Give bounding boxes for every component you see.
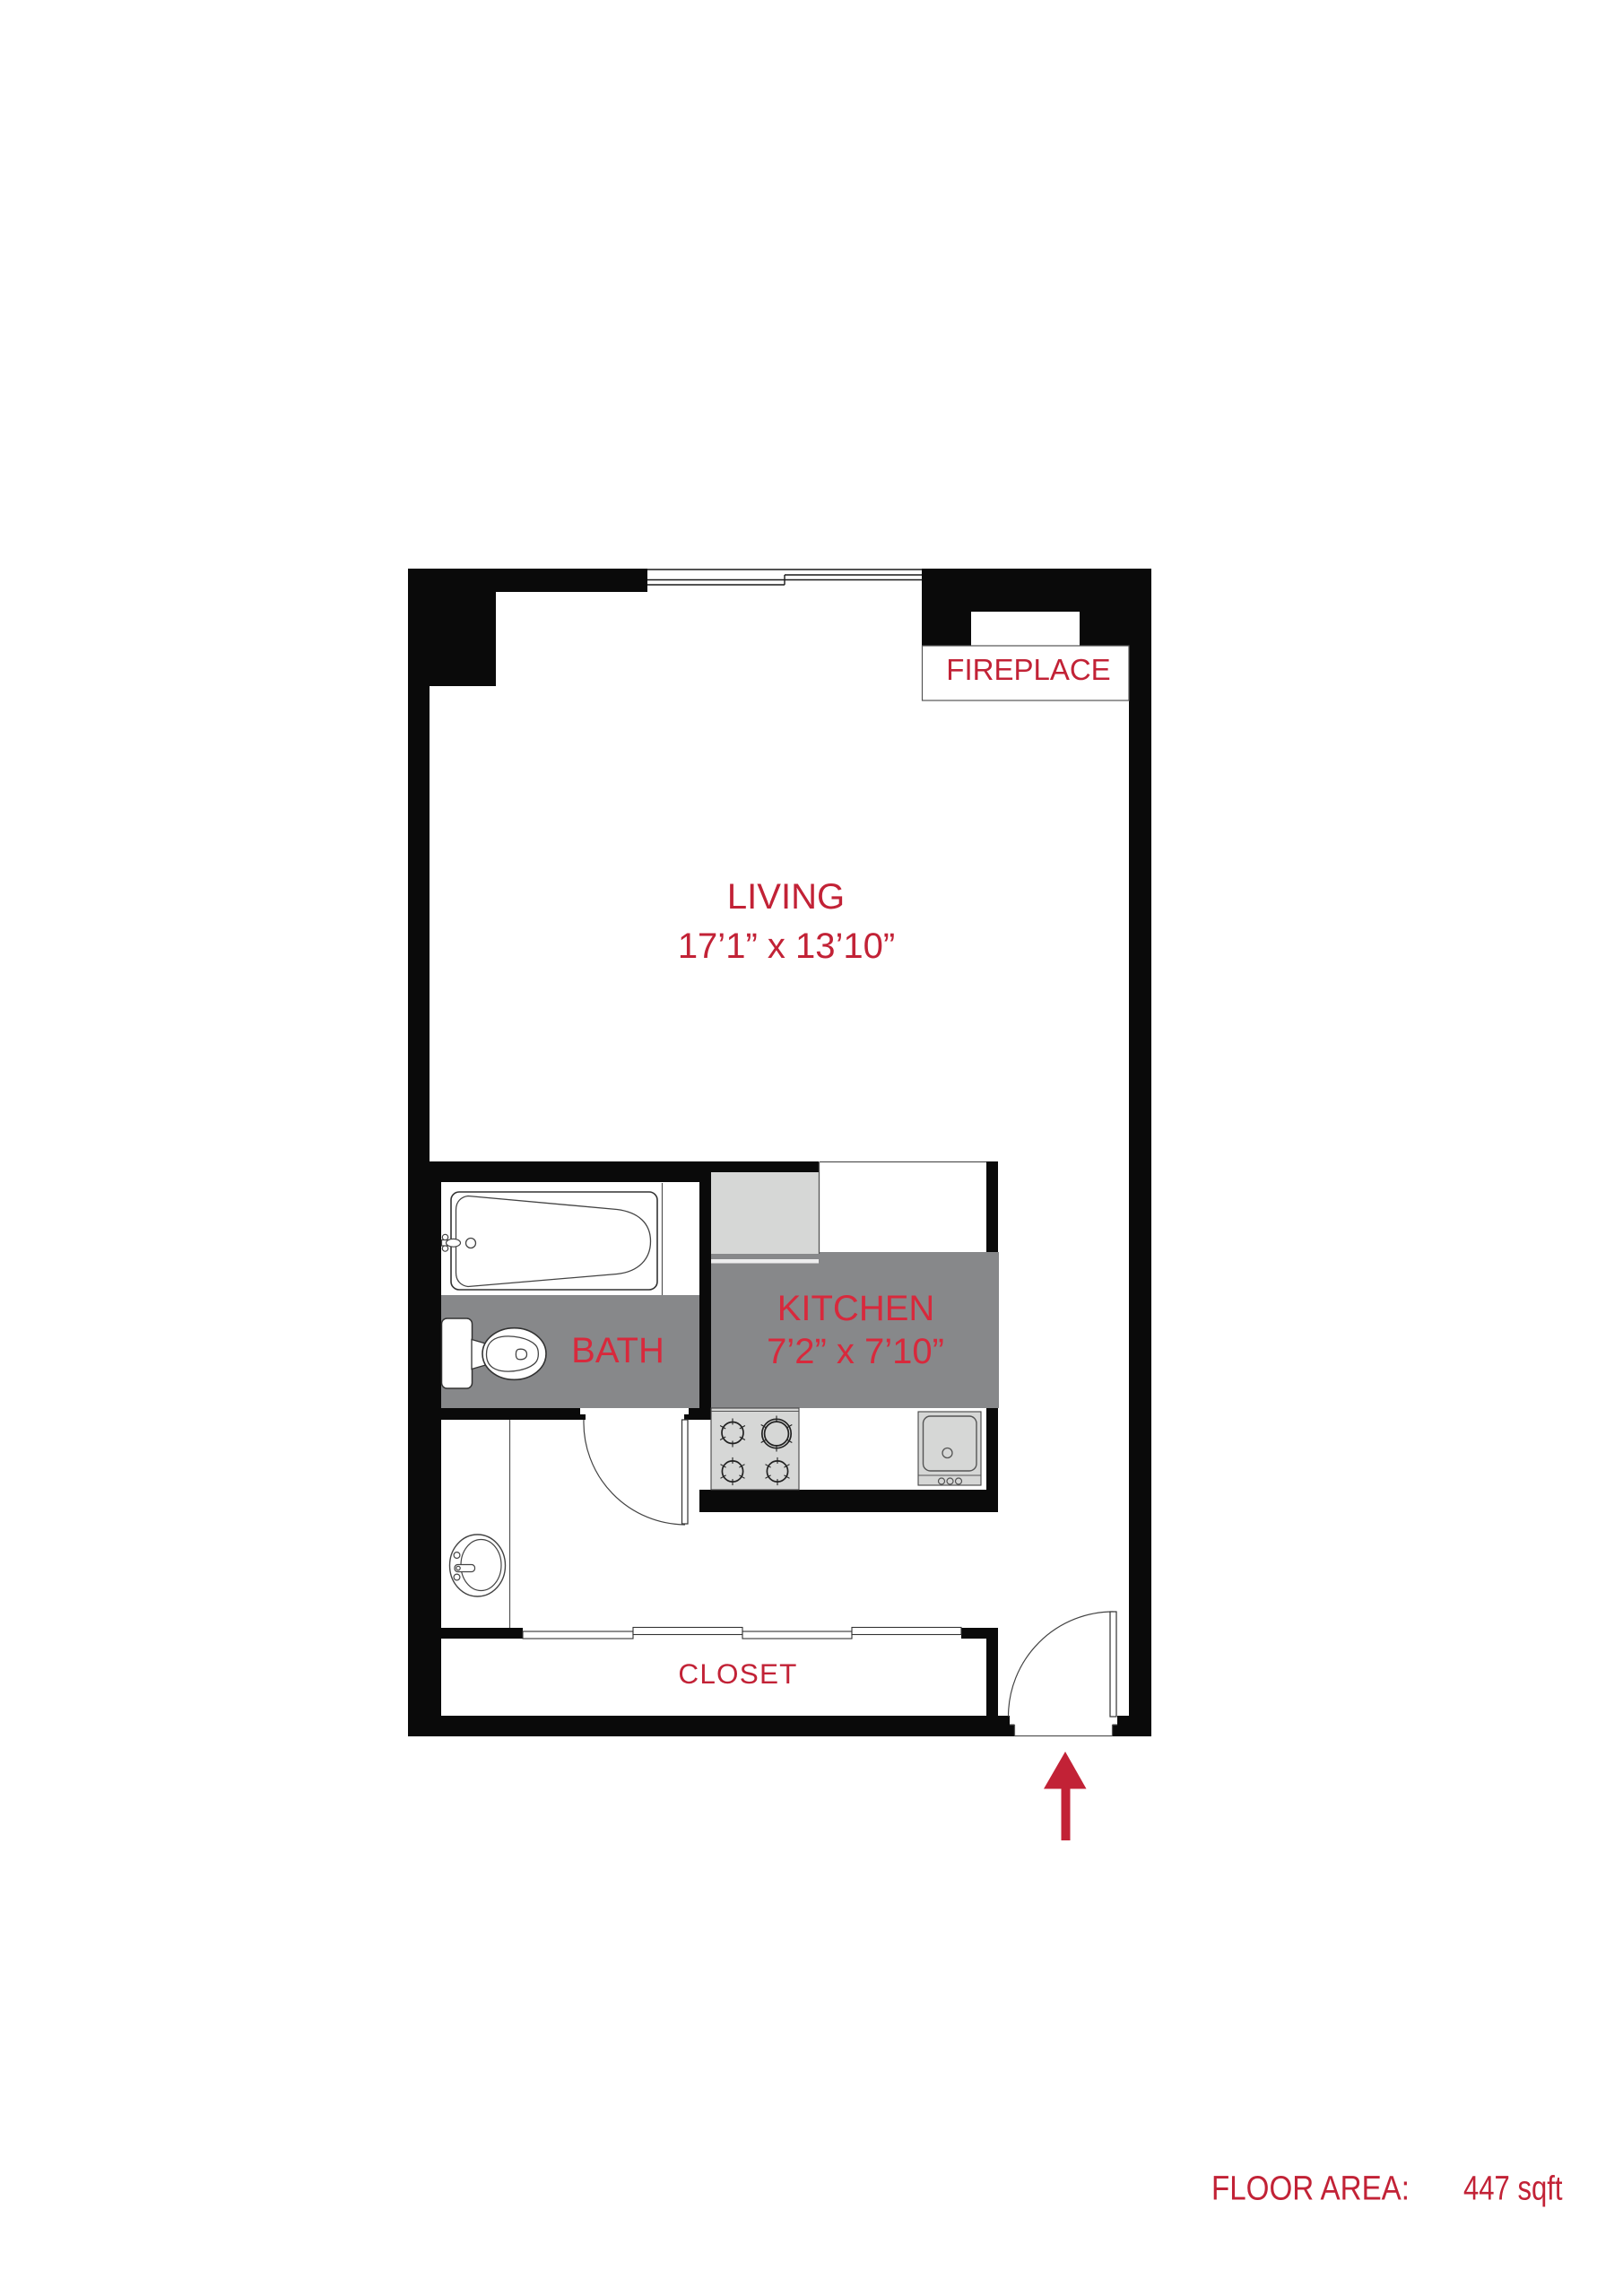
svg-text:17’1” x 13’10”: 17’1” x 13’10” <box>678 926 895 966</box>
svg-text:BATH: BATH <box>571 1331 664 1370</box>
svg-text:447 sqft: 447 sqft <box>1463 2170 1563 2208</box>
svg-text:LIVING: LIVING <box>727 877 845 917</box>
svg-text:KITCHEN: KITCHEN <box>777 1289 935 1328</box>
svg-text:7’2” x 7’10”: 7’2” x 7’10” <box>767 1332 944 1371</box>
svg-text:CLOSET: CLOSET <box>678 1657 797 1690</box>
svg-text:FLOOR AREA:: FLOOR AREA: <box>1211 2170 1410 2208</box>
svg-text:FIREPLACE: FIREPLACE <box>946 653 1110 686</box>
